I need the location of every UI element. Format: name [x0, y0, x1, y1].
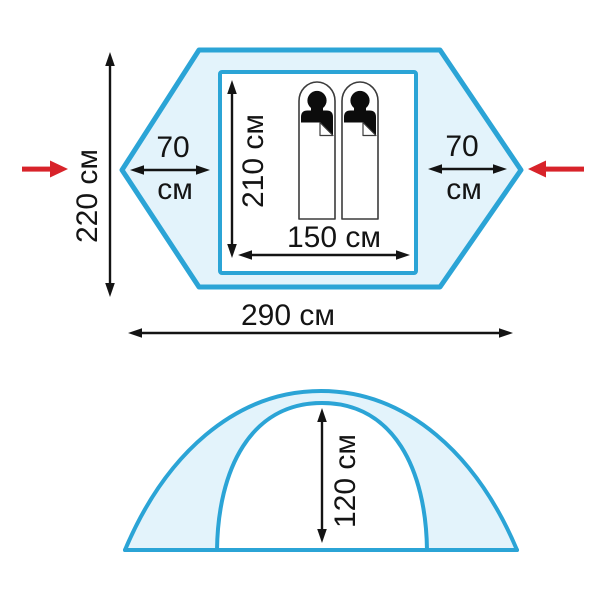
tent-dimensions-diagram: 220 см 70 см 70 см 210	[0, 0, 600, 600]
diagram-svg: 220 см 70 см 70 см 210	[0, 0, 600, 600]
depth-label: 220 см	[71, 149, 104, 243]
sleeping-bag	[299, 82, 335, 219]
top-view: 220 см 70 см 70 см 210	[22, 50, 584, 338]
inner-width-label: 150 см	[287, 221, 381, 254]
side-view: 120 см	[125, 391, 517, 550]
entrance-arrow-left-icon	[22, 161, 68, 178]
inner-length-label: 210 см	[237, 114, 270, 208]
entrance-arrow-right-icon	[528, 161, 584, 178]
total-width-label: 290 см	[241, 299, 335, 332]
dim-depth-arrow	[105, 52, 115, 297]
vestibule-right-unit: см	[446, 173, 482, 206]
vestibule-right-value: 70	[445, 130, 478, 163]
peak-height-label: 120 см	[329, 434, 362, 528]
sleeping-bag	[342, 82, 378, 219]
vestibule-left-value: 70	[156, 131, 189, 164]
vestibule-left-unit: см	[157, 173, 193, 206]
